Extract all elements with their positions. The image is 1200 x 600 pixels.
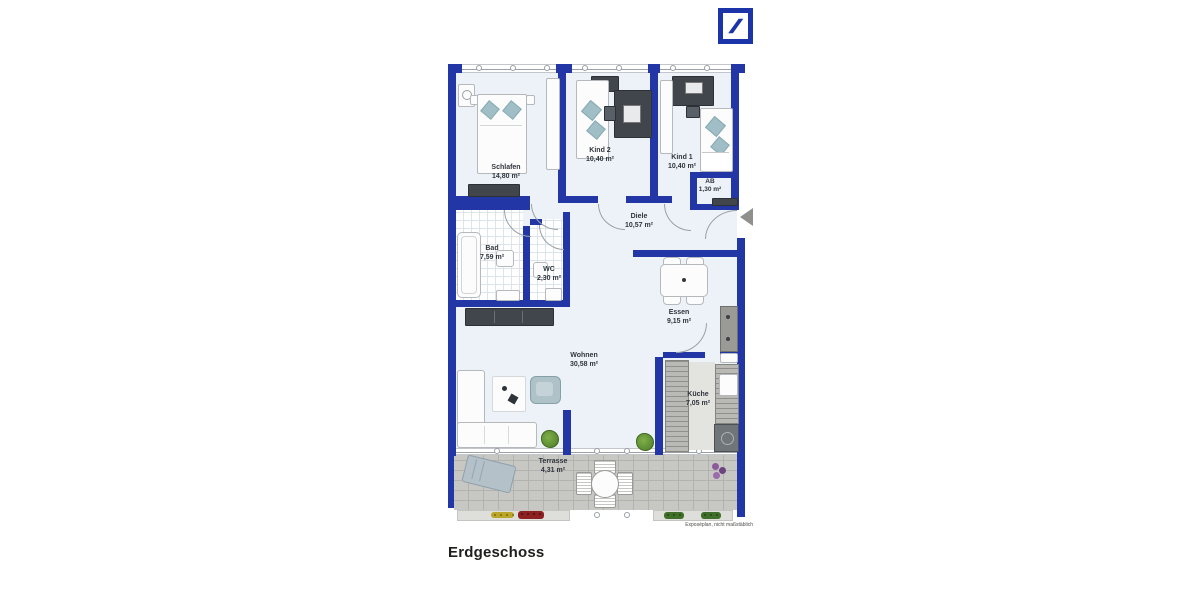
room-label-terrasse: Terrasse4,31 m² — [539, 458, 568, 475]
plant — [541, 430, 559, 448]
window-joint — [476, 65, 482, 71]
terrace-chair — [576, 472, 592, 495]
wall-schlafen-south — [456, 196, 530, 203]
plant — [636, 433, 654, 451]
window-joint — [582, 65, 588, 71]
wall-bad-north — [456, 203, 530, 210]
kind2-desk — [614, 90, 652, 138]
wc-toilet — [545, 288, 562, 301]
window-joint — [670, 65, 676, 71]
north-window-band — [448, 64, 739, 73]
bad-toilet — [496, 290, 520, 301]
flowers-green — [664, 512, 684, 519]
kind1-chair — [686, 106, 700, 118]
wall-bad-wc — [523, 226, 530, 300]
window-joint — [594, 448, 600, 454]
essen-cabinet — [720, 306, 738, 352]
terrace-joint — [594, 512, 600, 518]
window-joint — [624, 448, 630, 454]
room-label-wc: WC2,30 m² — [537, 266, 561, 283]
kind1-wardrobe — [660, 80, 673, 154]
kind2-chair — [604, 106, 616, 121]
deutsche-bank-logo-icon — [718, 8, 753, 44]
essen-table — [660, 264, 708, 297]
terrace-chair — [617, 472, 633, 495]
window-joint — [616, 65, 622, 71]
terrace-joint — [624, 512, 630, 518]
wall-kueche-north-left — [663, 352, 705, 358]
schlafen-bed — [477, 94, 527, 174]
wohnen-south-window — [456, 448, 563, 455]
room-label-wohnen: Wohnen30,58 m² — [570, 352, 598, 369]
kueche-sink — [719, 374, 738, 396]
wohnen-sofa-horizontal — [457, 422, 537, 448]
wohnen-armchair — [530, 376, 561, 404]
wohnen-sideboard — [465, 308, 554, 326]
floor-title: Erdgeschoss — [448, 544, 544, 561]
wall-top-block-b — [648, 64, 660, 73]
wall-wc-east — [563, 212, 570, 300]
room-label-ab: AB1,30 m² — [699, 178, 721, 193]
wall-terrace-left — [448, 448, 454, 508]
flower-bed-right — [653, 510, 733, 521]
window-joint — [510, 65, 516, 71]
wall-diele-essen — [633, 250, 737, 257]
window-joint — [544, 65, 550, 71]
flowers-red — [518, 511, 544, 519]
flowers-yellow — [491, 512, 514, 518]
ab-fixture — [712, 198, 738, 206]
wall-top-block-a — [556, 64, 572, 73]
schlafen-dresser — [468, 184, 520, 197]
room-label-schlafen: Schlafen14,80 m² — [491, 164, 520, 181]
wall-kind2-south-right — [626, 196, 658, 203]
wall-kind2-south-left — [558, 196, 598, 203]
room-label-diele: Diele10,57 m² — [625, 213, 653, 230]
schlafen-nightstand-right — [526, 95, 535, 105]
wohnen-rug — [492, 376, 526, 412]
room-label-kind1: Kind 110,40 m² — [668, 154, 696, 171]
floor-plan: Schlafen14,80 m² Kind 210,40 m² Kind 110… — [448, 64, 753, 520]
room-label-kueche: Küche7,05 m² — [686, 391, 710, 408]
wall-bad-south — [456, 300, 570, 307]
terrace-table — [591, 470, 619, 498]
db-slash-icon — [723, 13, 748, 39]
room-label-essen: Essen9,15 m² — [667, 309, 691, 326]
wall-kind1-south — [658, 196, 672, 203]
wall-kueche-west — [655, 357, 663, 455]
window-joint — [704, 65, 710, 71]
bad-bathtub — [457, 232, 481, 298]
kueche-wall-unit — [720, 353, 738, 363]
flower-bed-left — [457, 510, 570, 521]
kueche-oven — [714, 424, 739, 452]
schlafen-wardrobe — [546, 78, 560, 170]
kind1-desk — [672, 76, 714, 106]
room-label-bad: Bad7,59 m² — [480, 245, 504, 262]
wall-left — [448, 64, 456, 456]
room-label-kind2: Kind 210,40 m² — [586, 147, 614, 164]
terrace-flowers-purple — [710, 461, 728, 482]
wall-wohnen-terrace-pier — [563, 410, 571, 455]
plan-footnote: Exposéplan, nicht maßstäblich — [448, 522, 753, 528]
flowers-green — [701, 512, 721, 519]
entrance-arrow-icon — [740, 208, 753, 226]
page: Schlafen14,80 m² Kind 210,40 m² Kind 110… — [0, 0, 1200, 600]
kind1-bed — [700, 108, 733, 172]
window-joint — [494, 448, 500, 454]
